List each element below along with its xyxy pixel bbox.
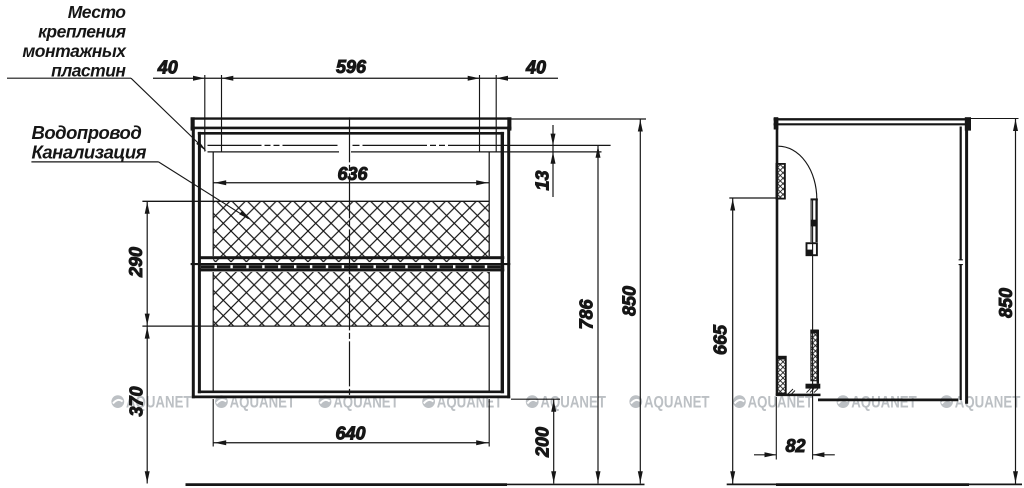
svg-text:40: 40: [157, 58, 178, 78]
svg-text:крепления: крепления: [38, 22, 126, 42]
svg-text:596: 596: [336, 57, 367, 77]
svg-text:Канализация: Канализация: [32, 141, 147, 162]
svg-text:370: 370: [126, 386, 146, 416]
svg-text:290: 290: [126, 247, 146, 278]
svg-text:665: 665: [710, 324, 730, 355]
svg-text:850: 850: [619, 286, 639, 316]
svg-text:850: 850: [996, 288, 1016, 318]
svg-text:640: 640: [335, 424, 365, 444]
svg-text:13: 13: [533, 170, 553, 190]
svg-text:40: 40: [525, 58, 546, 78]
svg-text:636: 636: [337, 164, 368, 184]
svg-text:82: 82: [785, 436, 805, 456]
svg-text:786: 786: [577, 299, 597, 330]
svg-text:Водопровод: Водопровод: [32, 122, 142, 143]
svg-text:монтажных: монтажных: [22, 41, 127, 61]
svg-text:Место: Место: [68, 2, 127, 22]
svg-text:200: 200: [532, 427, 552, 458]
